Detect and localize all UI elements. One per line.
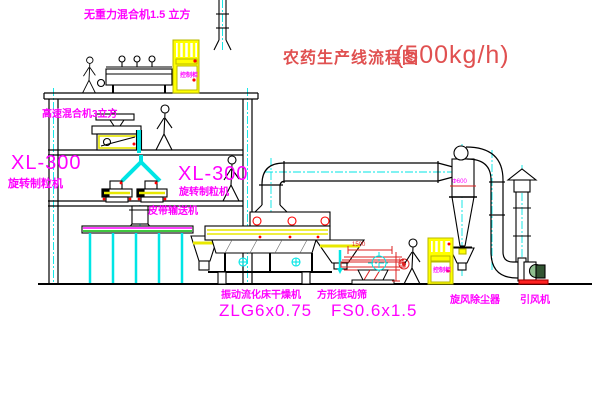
label-fan: 引风机 [520, 296, 550, 306]
label-belt-conveyor: 皮带输送机 [148, 207, 198, 217]
worker-figure [156, 105, 172, 150]
granulator-unit-1 [102, 181, 132, 202]
label-granulator-mid-name: 旋转制粒机 [179, 188, 229, 198]
label-granulator-left-name: 旋转制粒机 [8, 179, 63, 190]
label-sieve-model: FS0.6x1.5 [331, 302, 418, 319]
belt-conveyor [82, 226, 193, 283]
worker-figure [404, 239, 420, 284]
label-mixer2: 高速混合机3立方 [42, 110, 118, 120]
diagram-title-capacity: (500kg/h) [395, 43, 510, 68]
label-cabinet-top: 控制柜 [180, 73, 198, 79]
granulator-unit-2 [137, 181, 167, 202]
fluid-bed-dryer [205, 205, 332, 284]
worker-figure [83, 57, 96, 93]
control-cabinet-right [428, 238, 453, 284]
control-cabinet-top [173, 40, 199, 93]
label-cyclone: 旋风除尘器 [450, 296, 500, 306]
label-dryer-name: 振动流化床干燥机 [221, 291, 301, 301]
label-gravity-mixer: 无重力混合机1.5 立方 [84, 10, 190, 21]
label-sieve-name: 方形振动筛 [317, 291, 367, 301]
induced-draft-fan [518, 258, 548, 284]
exhaust-duct [259, 161, 453, 205]
production-line-diagram: 农药生产线流程图 (500kg/h) 无重力混合机1.5 立方 高速混合机3立方… [0, 0, 600, 403]
exhaust-stack [508, 169, 536, 262]
label-dryer-model: ZLG6x0.75 [219, 302, 312, 319]
dim-sieve-length: 1500 [352, 242, 365, 248]
dim-sieve-height: 340 [397, 258, 403, 268]
dim-cyclone-diameter: Φ600 [452, 179, 467, 185]
y-splitter-chute [122, 155, 160, 181]
label-cabinet-right: 控制柜 [433, 268, 451, 274]
label-granulator-left-model: XL-300 [11, 153, 82, 173]
label-granulator-mid-model: XL-300 [178, 164, 249, 184]
